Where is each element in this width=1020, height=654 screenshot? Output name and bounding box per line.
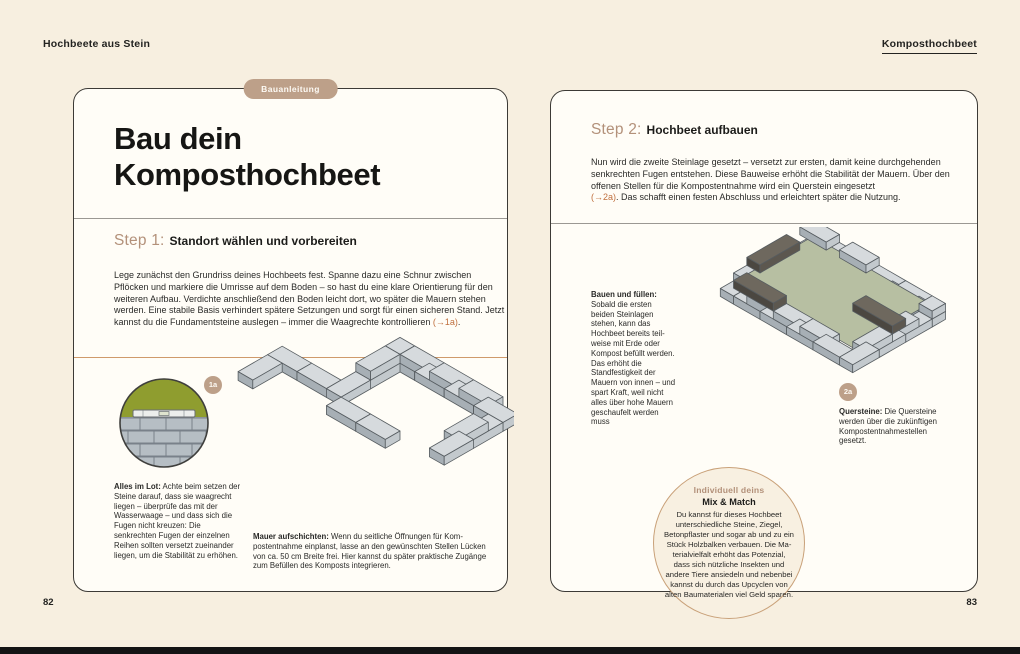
mix-body: Du kannst für dieses Hochbeet unterschie… (664, 510, 794, 600)
divider-gray (74, 218, 507, 219)
figure-stone-foundation-iso (232, 331, 514, 531)
caption-mauer-lead: Mauer aufschichten: (253, 532, 329, 541)
caption-quersteine: Quersteine: Die Quersteine werden über d… (839, 407, 941, 446)
step1-heading-row: Step 1:Standort wählen und vorbereiten (114, 232, 357, 250)
step1-body: Lege zunächst den Grundriss deines Hochb… (114, 270, 507, 329)
divider-gray-right (551, 223, 977, 224)
mix-and-match-circle: Individuell deins Mix & Match Du kannst … (653, 467, 805, 619)
caption-mauer-aufschichten: Mauer aufschichten: Wenn du seitliche Öf… (253, 532, 493, 571)
caption-alles-im-lot: Alles im Lot: Achte beim setzen der Stei… (114, 482, 243, 560)
right-page-card: Step 2:Hochbeet aufbauen Nun wird die zw… (550, 90, 978, 592)
step2-body-after: . Das schafft einen festen Abschluss und… (616, 192, 901, 202)
page-number-right: 83 (966, 597, 977, 608)
mix-eyebrow: Individuell deins (664, 485, 794, 495)
bottom-black-bar (0, 647, 1020, 654)
step2-body: Nun wird die zweite Steinlage gesetzt – … (591, 157, 963, 204)
step2-label: Step 2: (591, 121, 642, 138)
running-header-right: Komposthochbeet (882, 38, 977, 54)
caption-bauen-text: Sobald die ersten beiden Steinlagen steh… (591, 300, 675, 427)
page-title: Bau dein Komposthochbeet (114, 121, 380, 193)
step1-heading: Standort wählen und vorbereiten (170, 234, 357, 248)
caption-bauen-lead: Bauen und füllen: (591, 290, 657, 299)
step1-body-after: . (458, 317, 461, 327)
caption-bauen-und-fuellen: Bauen und füllen: Sobald die ersten beid… (591, 290, 677, 427)
step2-body-text: Nun wird die zweite Steinlage gesetzt – … (591, 157, 950, 191)
book-spread: Hochbeete aus Stein Komposthochbeet Baua… (0, 0, 1020, 654)
page-title-line1: Bau dein (114, 121, 242, 156)
caption-quersteine-lead: Quersteine: (839, 407, 882, 416)
figure-1a-level-circle (118, 377, 210, 469)
caption-lot-lead: Alles im Lot: (114, 482, 161, 491)
badge-2a: 2a (839, 383, 857, 401)
step2-reference-link: (→2a) (591, 192, 616, 202)
step1-reference-link: (→1a) (433, 317, 458, 327)
badge-1a: 1a (204, 376, 222, 394)
mix-title: Mix & Match (664, 497, 794, 507)
page-title-line2: Komposthochbeet (114, 157, 380, 192)
page-number-left: 82 (43, 597, 54, 608)
left-page-card: Bauanleitung Bau dein Komposthochbeet St… (73, 88, 508, 592)
bauanleitung-tag: Bauanleitung (243, 79, 338, 99)
figure-raised-bed-iso (643, 227, 973, 417)
step1-label: Step 1: (114, 232, 165, 249)
step2-heading-row: Step 2:Hochbeet aufbauen (591, 121, 758, 139)
step2-heading: Hochbeet aufbauen (647, 123, 758, 137)
caption-lot-text: Achte beim setzen der Steine darauf, das… (114, 482, 240, 560)
running-header-left: Hochbeete aus Stein (43, 38, 150, 50)
